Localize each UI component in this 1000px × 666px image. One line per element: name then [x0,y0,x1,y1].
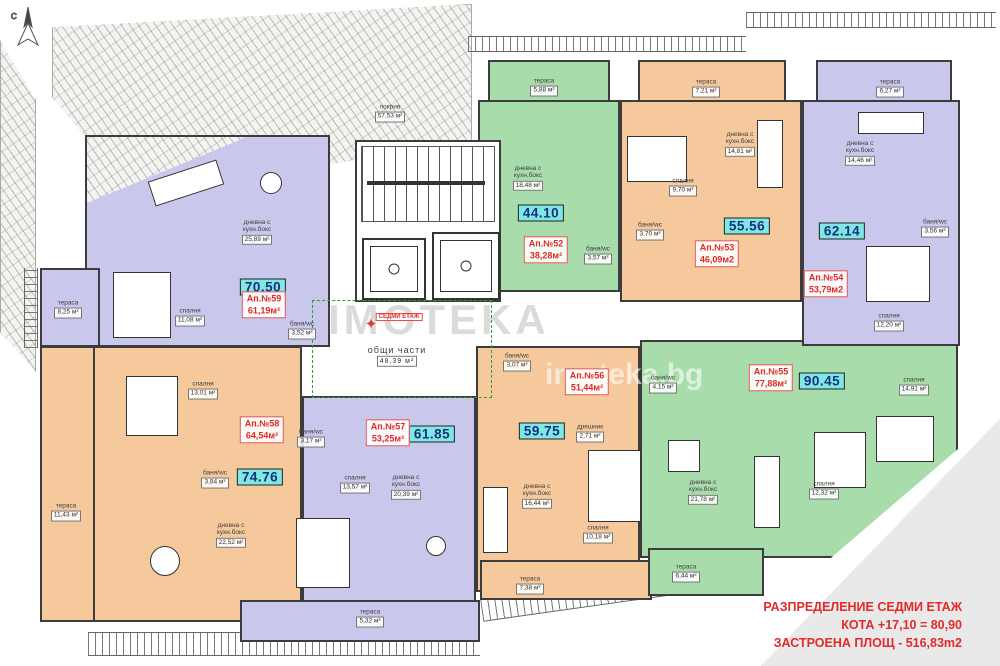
bed [866,246,930,302]
elevator-1-dot [389,264,400,275]
badge-apt58: 74.76 [237,469,283,486]
room-label: тераса7,21 м² [680,79,732,98]
elevator-1 [362,238,426,300]
sofa [754,456,780,528]
badge-apt56: 59.75 [519,423,565,440]
room-label: дрешник2,71 м² [564,424,616,443]
round-table [260,172,282,194]
room-label: тераса6,27 м² [864,79,916,98]
room-label: баня/wc3,52 м² [276,321,328,340]
sofa [858,112,924,134]
aptnum-52: Ап.№5238,28м² [524,236,568,263]
bed [588,450,641,522]
room-label: спалня10,18 м² [572,525,624,544]
floor-tag: СЕДМИ ЕТАЖ [376,313,423,321]
dining-table [668,440,700,472]
aptnum-55: Ап.№5577,88м² [749,364,793,391]
compass-letter: С [11,12,17,21]
room-label: спалня12,32 м² [798,481,850,500]
aptnum-54: Ап.№5453,79м2 [804,270,848,297]
aptnum-56: Ап.№5651,44м² [565,368,609,395]
stair-handrail [367,181,485,185]
room-label: тераса7,38 м² [504,576,556,595]
elevator-2-cab [440,240,492,292]
room-label: баня/wc4,15 м² [637,375,689,394]
aptnum-57: Ап.№5753,25м² [366,419,410,446]
room-label: дневна с кухн.бокс16,44 м² [511,483,563,509]
room-label: баня/wc3,84 м² [189,470,241,489]
sofa [483,487,508,553]
terrace-58-wall [93,347,95,621]
badge-apt54: 62.14 [819,223,865,240]
title-line-2: КОТА +17,10 = 80,90 [763,616,962,634]
room-label: тераса8,25 м² [42,300,94,319]
railing-top-right [746,12,996,28]
badge-apt55: 90.45 [799,373,845,390]
railing-top-center [468,36,746,52]
room-label: спалня11,08 м² [164,308,216,327]
room-label: спалня12,20 м² [863,313,915,332]
elevator-2 [432,232,500,300]
bed [876,416,934,462]
title-block: РАЗПРЕДЕЛЕНИЕ СЕДМИ ЕТАЖ КОТА +17,10 = 8… [763,598,962,652]
badge-apt57: 61.85 [409,426,455,443]
room-label: баня/wc3,07 м² [491,353,543,372]
room-label: баня/wc3,57 м² [572,246,624,265]
floor-plan: С IMOTEKA imoteka.bg покрив57,53 м² общи… [0,0,1000,666]
room-label: дневна с кухн.бокс21,78 м² [677,479,729,505]
room-label: дневна с кухн.бокс20,39 м² [380,474,432,500]
room-label: спалня9,70 м² [657,178,709,197]
room-label: тераса6,44 м² [660,564,712,583]
room-label: дневна с кухн.бокс25,89 м² [231,219,283,245]
common-area-label: общи части48,39 м² [352,345,442,367]
room-label: спалня13,01 м² [177,381,229,400]
room-label: дневна с кухн.бокс22,52 м² [205,522,257,548]
room-label: баня/wc3,70 м² [624,222,676,241]
bed [126,376,178,436]
room-label: спалня14,91 м² [888,377,940,396]
north-compass-icon: С [5,5,51,57]
watermark-center: IMOTEKA [328,296,550,344]
bed [113,272,171,338]
badge-apt53: 55.56 [724,218,770,235]
roof-label: покрив57,53 м² [364,104,416,123]
round-table [150,546,180,576]
bed [627,136,687,182]
room-label: спалня13,57 м² [329,475,381,494]
elevator-1-cab [370,246,418,292]
room-label: баня/wc3,17 м² [285,429,337,448]
round-table [426,536,446,556]
fire-star-icon: ✦ [365,315,378,333]
room-label: дневна с кухн.бокс14,81 м² [714,131,766,157]
aptnum-58: Ап.№5864,54м² [240,416,284,443]
room-label: тераса5,88 м² [518,78,570,97]
bed [296,518,350,588]
room-label: тераса5,32 м² [344,609,396,628]
railing-left [24,268,38,348]
aptnum-59: Ап.№5961,19м² [242,291,286,318]
room-label: дневна с кухн.бокс14,46 м² [834,140,886,166]
title-line-1: РАЗПРЕДЕЛЕНИЕ СЕДМИ ЕТАЖ [763,598,962,616]
title-line-3: ЗАСТРОЕНА ПЛОЩ - 516,83m2 [763,634,962,652]
aptnum-53: Ап.№5346,09м2 [695,240,739,267]
elevator-2-dot [461,261,472,272]
room-label: баня/wc3,56 м² [909,219,961,238]
badge-apt52: 44.10 [518,205,564,222]
room-label: тераса11,43 м² [40,503,92,522]
room-label: дневна с кухн.бокс18,48 м² [502,165,554,191]
